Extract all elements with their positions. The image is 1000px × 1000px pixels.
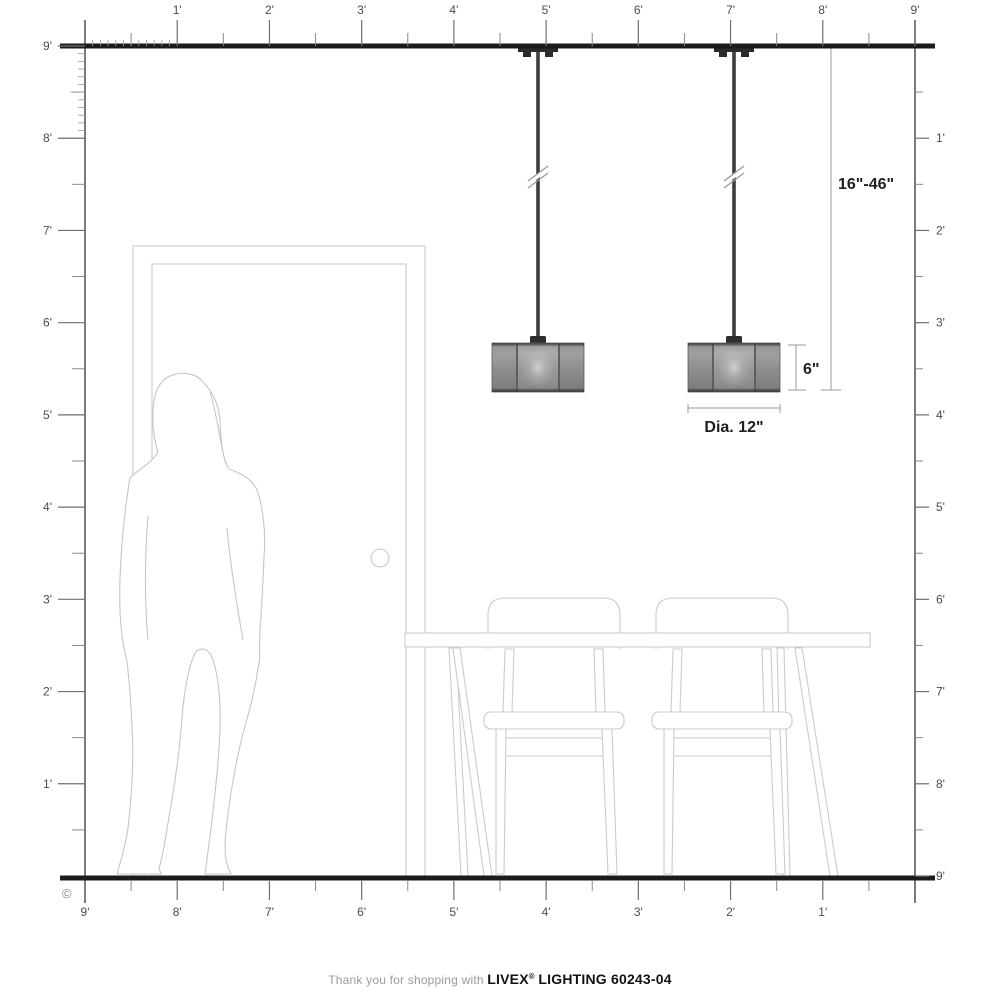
left-ruler-label-9: 9' <box>43 39 52 53</box>
scale-diagram: 16"-46" 6" Dia. 12" 1'2'3'4'5'6'7'8'9' 9… <box>0 0 1000 1000</box>
bottom-ruler-label-5: 5' <box>449 905 458 919</box>
left-ruler: 9'8'7'6'5'4'3'2'1' <box>43 39 85 830</box>
left-ruler-label-2: 2' <box>43 685 52 699</box>
bottom-ruler-label-8: 8' <box>173 905 182 919</box>
left-ruler-label-7: 7' <box>43 223 52 237</box>
footer-product: LIGHTING 60243-04 <box>538 971 671 987</box>
table-leg <box>795 648 838 876</box>
bottom-ruler-label-9: 9' <box>81 905 90 919</box>
right-ruler-label-2: 2' <box>936 223 945 237</box>
left-ruler-label-8: 8' <box>43 131 52 145</box>
top-ruler-label-7: 7' <box>726 3 735 17</box>
footer-thanks: Thank you for shopping with <box>328 973 484 987</box>
right-ruler-label-6: 6' <box>936 592 945 606</box>
right-ruler-label-8: 8' <box>936 777 945 791</box>
top-ruler-label-9: 9' <box>911 3 920 17</box>
silhouette-outline <box>117 373 265 874</box>
copyright-mark: © <box>62 886 72 901</box>
top-ruler-label-3: 3' <box>357 3 366 17</box>
bottom-ruler: 9'8'7'6'5'4'3'2'1' <box>81 881 869 919</box>
left-ruler-label-1: 1' <box>43 777 52 791</box>
right-ruler-label-5: 5' <box>936 500 945 514</box>
top-ruler-label-4: 4' <box>449 3 458 17</box>
right-ruler-label-1: 1' <box>936 131 945 145</box>
footer-brand: LIVEX <box>487 971 528 987</box>
human-silhouette <box>117 373 265 874</box>
top-ruler-label-5: 5' <box>542 3 551 17</box>
fixture-height-label: 6" <box>803 361 819 378</box>
left-ruler-label-5: 5' <box>43 408 52 422</box>
pendant-light-1 <box>492 47 584 392</box>
door-knob <box>371 549 389 567</box>
top-ruler: 1'2'3'4'5'6'7'8'9' <box>93 3 920 46</box>
table-top <box>405 633 870 647</box>
right-ruler-label-7: 7' <box>936 685 945 699</box>
bottom-ruler-label-3: 3' <box>634 905 643 919</box>
left-ruler-label-6: 6' <box>43 316 52 330</box>
bottom-ruler-label-4: 4' <box>542 905 551 919</box>
top-ruler-label-6: 6' <box>634 3 643 17</box>
registered-mark: ® <box>529 972 535 981</box>
footer: Thank you for shopping with LIVEX® LIGHT… <box>0 971 1000 987</box>
right-ruler-label-9: 9' <box>936 869 945 883</box>
top-ruler-label-2: 2' <box>265 3 274 17</box>
fixture-diameter-label: Dia. 12" <box>704 419 763 436</box>
left-ruler-label-4: 4' <box>43 500 52 514</box>
pendant-light-2 <box>688 47 780 392</box>
bottom-ruler-label-6: 6' <box>357 905 366 919</box>
bottom-ruler-label-2: 2' <box>726 905 735 919</box>
right-ruler-label-4: 4' <box>936 408 945 422</box>
diagram-svg: 16"-46" 6" Dia. 12" 1'2'3'4'5'6'7'8'9' 9… <box>0 0 1000 1000</box>
bottom-ruler-label-7: 7' <box>265 905 274 919</box>
hang-range-label: 16"-46" <box>838 176 894 193</box>
left-ruler-label-3: 3' <box>43 592 52 606</box>
top-ruler-label-8: 8' <box>818 3 827 17</box>
top-ruler-label-1: 1' <box>173 3 182 17</box>
right-ruler-label-3: 3' <box>936 316 945 330</box>
right-ruler: 1'2'3'4'5'6'7'8'9' <box>915 92 945 883</box>
bottom-ruler-label-1: 1' <box>818 905 827 919</box>
